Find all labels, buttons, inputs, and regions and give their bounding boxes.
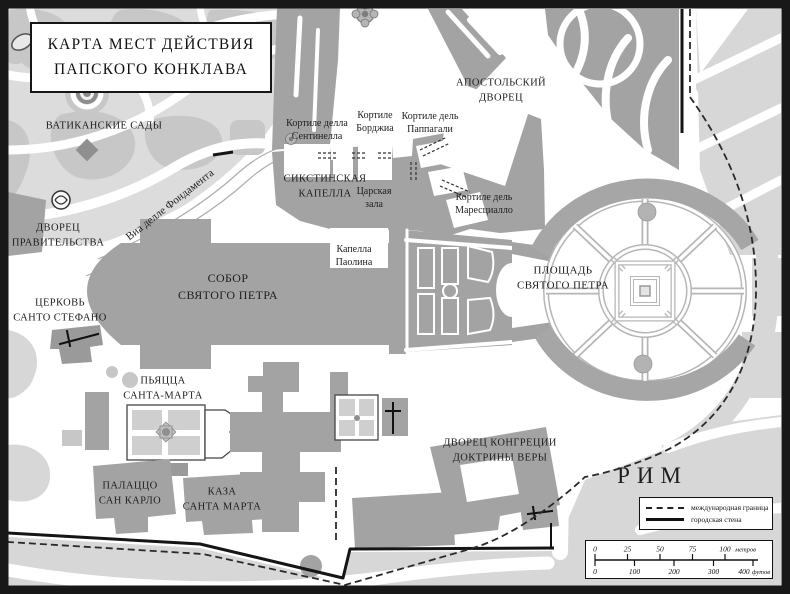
sentinella-fountain-icon xyxy=(286,134,297,145)
fountain-north-icon xyxy=(638,203,656,221)
scale-m75: 75 xyxy=(689,545,697,554)
scale-bar-box: 0 25 50 75 100 метров 0 100 200 300 400 … xyxy=(585,540,773,579)
dashed-line-swatch xyxy=(646,507,684,509)
government-palace-shape xyxy=(8,192,46,256)
legend-row-wall: городская стена xyxy=(646,515,766,524)
map-title-box: КАРТА МЕСТ ДЕЙСТВИЯ ПАПСКОГО КОНКЛАВА xyxy=(30,22,272,93)
scale-f300: 300 xyxy=(707,567,720,576)
scale-bar: 0 25 50 75 100 метров 0 100 200 300 400 … xyxy=(586,541,771,577)
scale-m100: 100 xyxy=(719,545,731,554)
solid-line-swatch xyxy=(646,518,684,521)
scale-feet-unit: футов xyxy=(752,569,770,576)
st-peters-square-shape xyxy=(540,189,750,391)
well-icon xyxy=(52,191,70,209)
scale-meters-unit: метров xyxy=(734,547,756,554)
chapel-shape xyxy=(382,398,408,436)
map-title: КАРТА МЕСТ ДЕЙСТВИЯ ПАПСКОГО КОНКЛАВА xyxy=(48,33,255,81)
cortile-borgia-courtyard xyxy=(358,143,392,180)
legend-international-border-label: международная граница xyxy=(691,503,768,512)
legend-city-wall-label: городская стена xyxy=(691,515,742,524)
legend-box: международная граница городская стена xyxy=(639,497,773,530)
legend-row-border: международная граница xyxy=(646,503,766,512)
conclave-map: КАРТА МЕСТ ДЕЙСТВИЯ ПАПСКОГО КОНКЛАВА ВА… xyxy=(0,0,790,594)
cortile-sentinella-courtyard xyxy=(284,144,330,177)
scale-m25: 25 xyxy=(624,545,632,554)
scale-m50: 50 xyxy=(656,545,664,554)
scale-f400: 400 xyxy=(738,567,750,576)
fountain-south-icon xyxy=(634,355,652,373)
scale-f200: 200 xyxy=(668,567,680,576)
scale-f100: 100 xyxy=(629,567,641,576)
small-garden-courtyard xyxy=(335,395,378,440)
scale-f0: 0 xyxy=(593,567,597,576)
scale-m0: 0 xyxy=(593,545,597,554)
